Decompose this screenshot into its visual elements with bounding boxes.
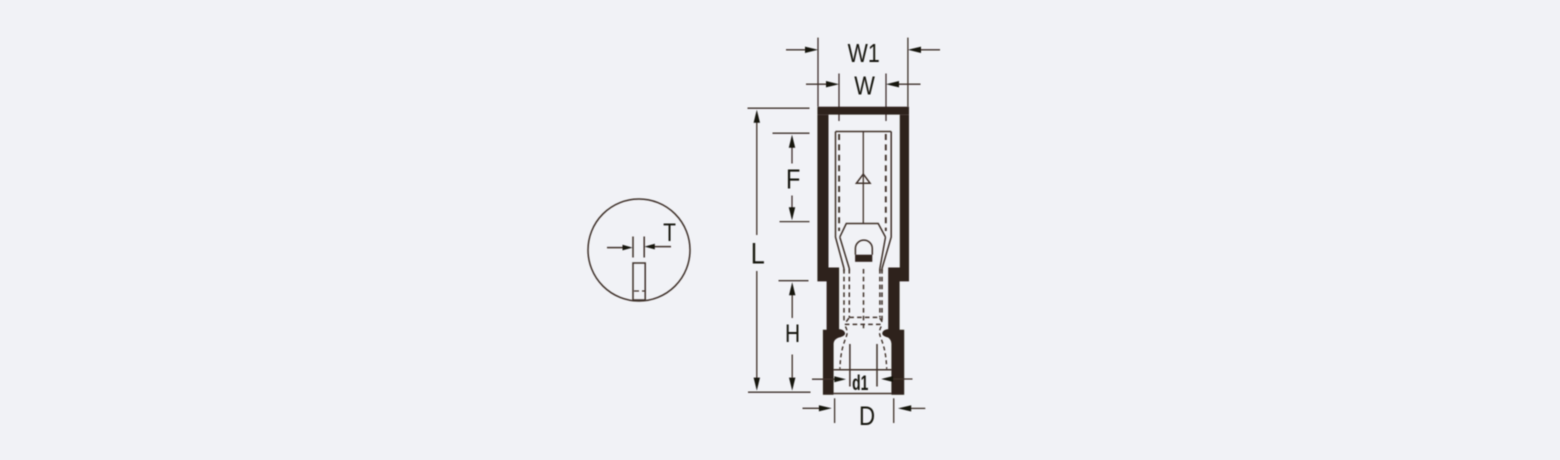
svg-text:T: T <box>663 218 676 246</box>
svg-text:W1: W1 <box>848 39 880 67</box>
svg-text:d1: d1 <box>852 371 868 395</box>
svg-text:D: D <box>859 402 875 431</box>
svg-text:F: F <box>786 164 800 194</box>
svg-text:H: H <box>785 319 800 347</box>
svg-text:L: L <box>751 237 765 271</box>
svg-text:W: W <box>854 72 875 101</box>
